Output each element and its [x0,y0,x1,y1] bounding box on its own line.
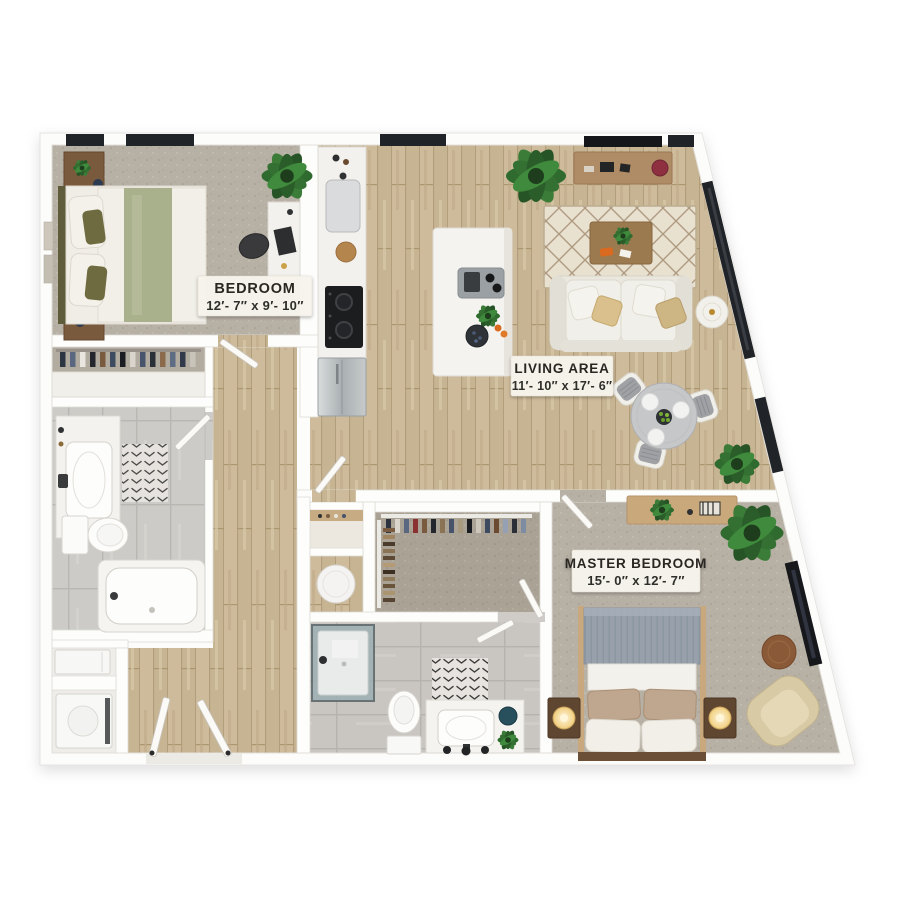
closet-shelf [52,372,205,397]
fridge-handle [336,364,339,384]
table-decor [709,309,715,315]
tv-console [574,152,672,184]
wall-utility-divider [52,676,116,690]
master-bedroom-dimensions: 15′- 0″ x 12′- 7″ [587,573,685,588]
counter-item [343,159,349,165]
accent-pillow [84,265,107,301]
island-edge [504,228,512,376]
wall-niche-top [310,502,363,510]
door-hinge [226,751,231,756]
side-rail [377,520,381,608]
sofa-back [560,340,682,352]
tub-basin [106,568,197,624]
sofa-armrest [550,276,566,350]
master-bedroom-name: MASTER BEDROOM [565,556,707,571]
console-book [584,166,594,172]
cup [486,274,495,283]
queen-bed [58,186,206,324]
bath-mat-pattern [122,444,168,502]
toilet [387,691,421,754]
floorplan-canvas: BEDROOM 12′- 7″ x 9′- 10″ LIVING AREA 11… [0,0,900,900]
shower-drain [342,662,347,667]
knit-blanket [584,608,700,664]
side-table [696,296,728,328]
sofa [550,276,692,352]
accent-pillow [587,689,640,722]
kitchen-window [380,134,446,146]
hardware [443,746,451,754]
closet-rail [56,349,201,352]
faucet [58,474,68,488]
toiletry [58,427,64,433]
throw-highlight [132,195,142,315]
master-bed [578,606,706,761]
headboard [578,752,706,761]
shower [312,625,374,701]
toilet [62,516,128,554]
wall-masterbath-top [310,612,498,622]
wall-niche-mid [310,548,363,556]
kitchen-sink [326,180,360,232]
pillow [641,719,696,753]
game-controller [600,162,614,172]
plate [648,429,665,446]
burner [336,294,352,310]
counter-item [333,155,340,162]
dryer-vent [105,698,110,744]
coffee-table [590,222,652,264]
wall-walkin-top [375,502,552,512]
hardware [481,746,489,754]
center-bowl [656,409,672,425]
refrigerator [318,358,366,416]
bedroom-window [126,134,194,146]
desk-decor [287,209,293,215]
bedroom-dimensions: 12′- 7″ x 9′- 10″ [206,298,304,313]
toiletry [59,442,64,447]
cutting-board [336,242,356,262]
wall-hall-left [205,347,213,642]
cup [493,284,502,293]
sink-faucet [340,173,347,180]
fruit-bowl [466,325,488,347]
game-controller [619,163,630,172]
pillow [585,719,640,753]
master-vanity [426,700,524,756]
shower-head [319,656,327,664]
toilet-tank [387,736,421,754]
blanket-fold [584,608,700,616]
living-area-label-plate: LIVING AREA 11′- 10″ x 17′- 6″ [511,356,613,396]
shower-towel [332,640,358,658]
tub-drain [149,607,155,613]
plate [673,402,690,419]
hardware [462,747,471,756]
toilet-seat [394,696,414,724]
bedroom-name: BEDROOM [214,281,295,297]
wall-utility-right [116,648,128,753]
sage-throw [124,188,172,322]
floorplan: BEDROOM 12′- 7″ x 9′- 10″ LIVING AREA 11… [0,0,900,900]
bathtub [98,560,205,632]
toilet-tank [62,516,88,554]
tub-faucet [110,592,118,600]
dresser-console [627,496,737,524]
towel-pattern [432,658,488,700]
dryer-door [68,706,98,736]
plate [642,394,659,411]
bedroom-window [66,134,104,146]
bedroom-label-plate: BEDROOM 12′- 7″ x 9′- 10″ [198,276,312,316]
flower-vase [652,160,668,176]
utility-closets [55,650,112,748]
master-bedroom-label-plate: MASTER BEDROOM 15′- 0″ x 12′- 7″ [565,550,707,592]
wall-utility-top [40,640,128,648]
desk-decor [281,263,287,269]
living-area-dimensions: 11′- 10″ x 17′- 6″ [512,379,613,393]
cooktop [325,286,363,348]
espresso-maker [464,272,480,292]
wall-niche-right [363,502,375,622]
orange [495,325,502,332]
toilet-seat [97,524,123,546]
orange [501,331,508,338]
round-side-table [762,635,796,669]
wall-suite-left [297,497,310,753]
corner-window [668,135,694,147]
burner [336,322,352,338]
sheet [588,664,696,690]
storage-niche [317,565,355,603]
wall-art [44,222,53,250]
door-hinge [150,751,155,756]
wall-closet-bath [52,397,213,407]
linen-niche [310,510,363,521]
kitchen-island [433,228,512,376]
living-area-name: LIVING AREA [514,361,609,376]
closet-rail [381,514,532,518]
wall-art [44,255,53,283]
decor-dish [499,707,517,725]
wall-tv [584,136,662,147]
console-decor [687,509,693,515]
accent-pillow [643,689,696,721]
